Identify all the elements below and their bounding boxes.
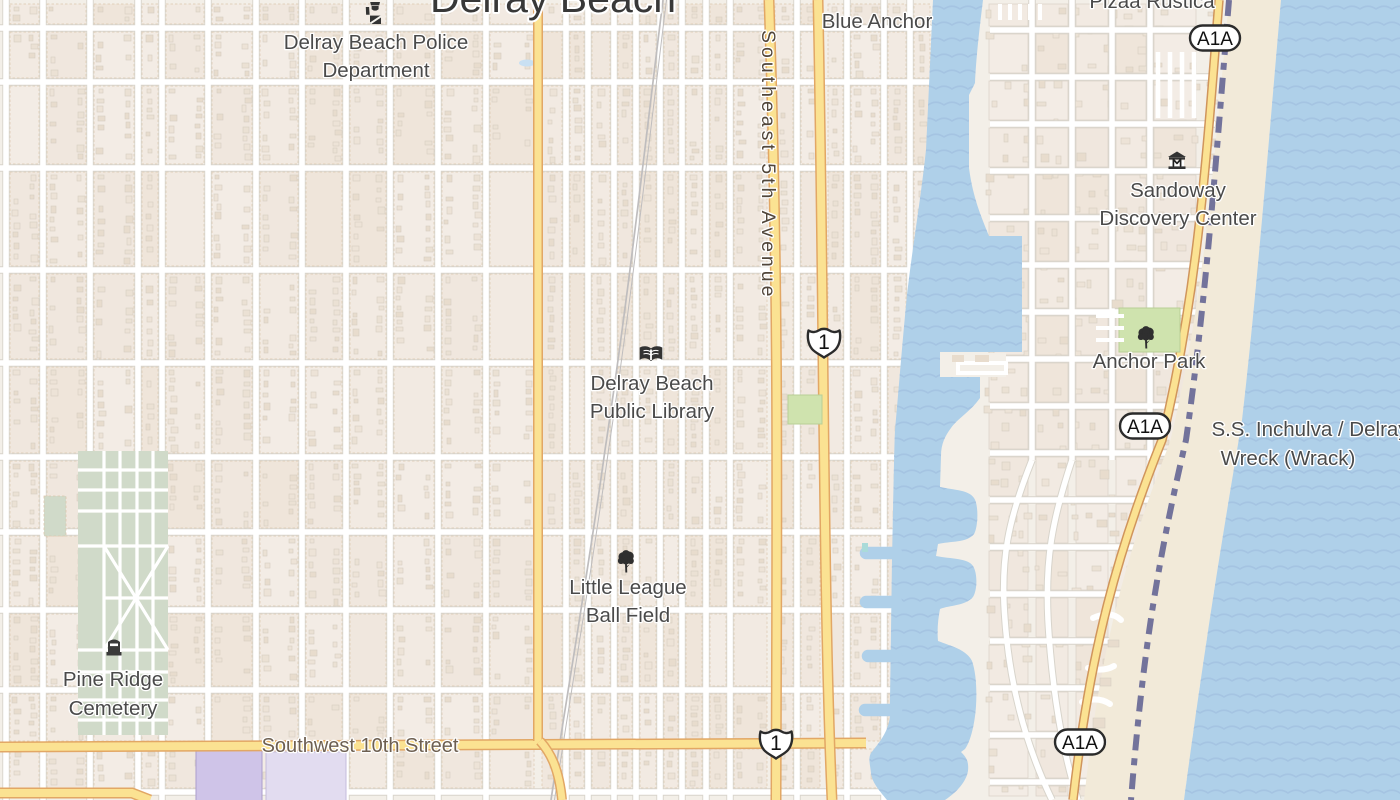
svg-text:Cemetery: Cemetery bbox=[69, 697, 159, 720]
svg-text:Department: Department bbox=[322, 59, 429, 82]
svg-text:Discovery Center: Discovery Center bbox=[1099, 207, 1256, 230]
svg-text:Ball Field: Ball Field bbox=[586, 604, 670, 627]
svg-text:Anchor Park: Anchor Park bbox=[1093, 350, 1207, 373]
svg-text:Delray Beach Police: Delray Beach Police bbox=[284, 31, 469, 54]
svg-text:Southeast 5th Avenue: Southeast 5th Avenue bbox=[757, 30, 779, 300]
svg-text:Delray Beach: Delray Beach bbox=[590, 372, 713, 395]
svg-text:A1A: A1A bbox=[1127, 417, 1163, 438]
svg-text:A1A: A1A bbox=[1062, 733, 1098, 754]
svg-text:Pizaa Rustica: Pizaa Rustica bbox=[1089, 0, 1215, 13]
svg-text:Little League: Little League bbox=[569, 576, 686, 599]
svg-text:Delray Beach: Delray Beach bbox=[430, 0, 676, 21]
svg-text:1: 1 bbox=[818, 331, 830, 354]
svg-text:S.S. Inchulva / Delray: S.S. Inchulva / Delray bbox=[1211, 418, 1400, 441]
svg-text:A1A: A1A bbox=[1197, 29, 1233, 50]
svg-text:Sandoway: Sandoway bbox=[1130, 179, 1226, 202]
svg-text:Pine Ridge: Pine Ridge bbox=[63, 668, 163, 691]
svg-text:Southwest 10th Street: Southwest 10th Street bbox=[262, 735, 459, 757]
svg-text:Wreck (Wrack): Wreck (Wrack) bbox=[1221, 447, 1356, 470]
svg-text:Blue Anchor: Blue Anchor bbox=[822, 10, 933, 33]
svg-text:1: 1 bbox=[770, 732, 782, 755]
svg-text:Public Library: Public Library bbox=[590, 400, 715, 423]
